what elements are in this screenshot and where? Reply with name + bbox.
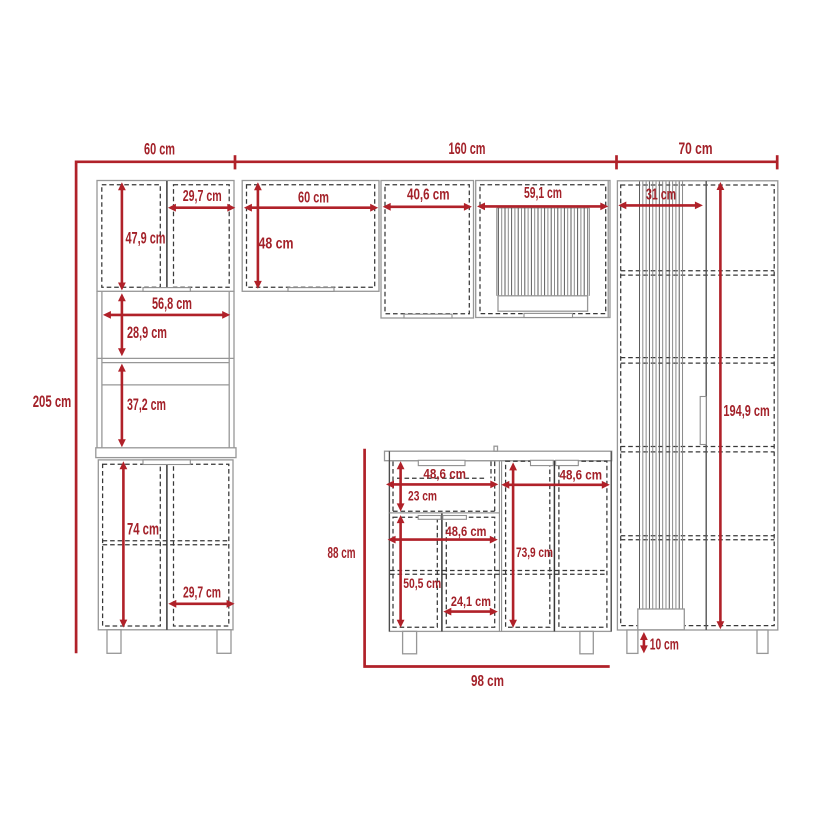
svg-text:74 cm: 74 cm — [127, 521, 159, 539]
svg-text:31 cm: 31 cm — [646, 187, 676, 204]
svg-text:48 cm: 48 cm — [259, 236, 294, 253]
svg-text:60 cm: 60 cm — [144, 140, 175, 159]
svg-text:24,1 cm: 24,1 cm — [451, 594, 491, 609]
svg-text:29,7 cm: 29,7 cm — [183, 585, 221, 602]
svg-text:88 cm: 88 cm — [328, 545, 356, 562]
svg-text:48,6 cm: 48,6 cm — [446, 524, 487, 539]
svg-text:50,5 cm: 50,5 cm — [403, 576, 441, 591]
svg-text:48,6 cm: 48,6 cm — [423, 466, 466, 481]
svg-text:48,6 cm: 48,6 cm — [560, 468, 603, 483]
svg-text:23 cm: 23 cm — [408, 488, 437, 503]
svg-text:70 cm: 70 cm — [679, 139, 713, 158]
svg-text:28,9 cm: 28,9 cm — [127, 324, 167, 342]
svg-text:73,9 cm: 73,9 cm — [516, 545, 553, 560]
svg-text:56,8 cm: 56,8 cm — [152, 295, 192, 313]
svg-text:98 cm: 98 cm — [471, 673, 504, 690]
svg-text:10 cm: 10 cm — [650, 637, 679, 654]
svg-text:47,9 cm: 47,9 cm — [126, 230, 166, 248]
svg-text:40,6 cm: 40,6 cm — [407, 186, 450, 203]
svg-text:29,7 cm: 29,7 cm — [183, 188, 222, 205]
svg-text:59,1 cm: 59,1 cm — [524, 185, 562, 202]
svg-text:205 cm: 205 cm — [33, 392, 72, 411]
svg-text:194,9 cm: 194,9 cm — [723, 403, 769, 420]
svg-text:60 cm: 60 cm — [298, 190, 329, 207]
svg-text:37,2 cm: 37,2 cm — [127, 396, 166, 414]
svg-text:160 cm: 160 cm — [449, 139, 486, 158]
